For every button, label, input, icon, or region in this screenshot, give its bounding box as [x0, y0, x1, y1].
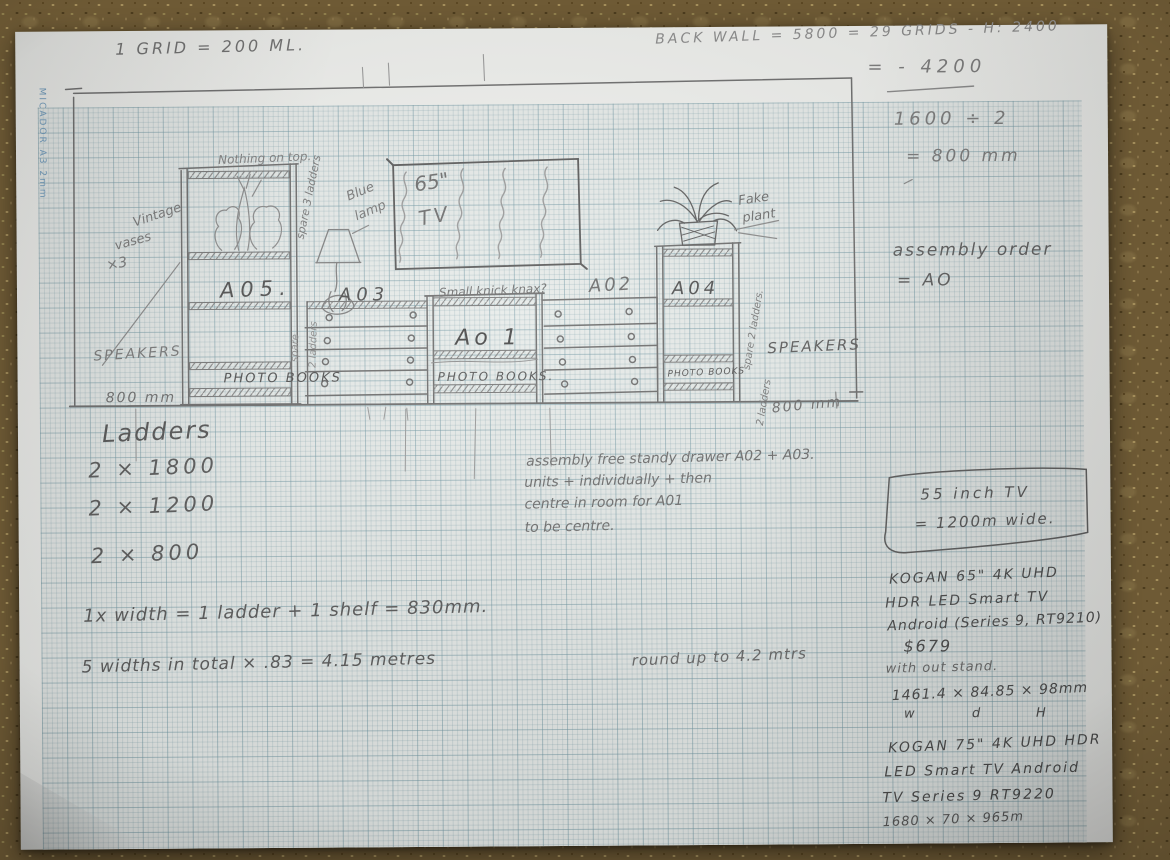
photo-books-a01-label: PHOTO BOOKS. — [438, 370, 555, 384]
vases-sketch — [215, 174, 282, 250]
dim-left-label: 800 mm — [106, 391, 177, 407]
unit-a05-label: A05. — [220, 277, 293, 303]
result-calc: = 800 mm — [906, 147, 1021, 166]
photo-of-sketch: MICADOR A3 2mm — [0, 0, 1170, 860]
graph-paper-sheet: MICADOR A3 2mm — [15, 24, 1113, 850]
tv-box-note-line1: 55 inch TV — [920, 484, 1030, 503]
photo-books-a05-label: PHOTO BOOKS — [224, 372, 342, 387]
two-ladders-left-label: 2 ladders — [308, 321, 320, 368]
axis-w-label: w — [904, 708, 915, 722]
drawer-unit-a03-drawing — [305, 301, 428, 404]
assembly-note-line4: to be centre. — [524, 519, 614, 537]
spare-left-label: spare — [289, 334, 301, 362]
without-stand-note: with out stand. — [885, 660, 998, 677]
axis-h-label: H — [1036, 707, 1046, 721]
axis-d-label: d — [972, 707, 980, 721]
drawer-unit-a02-drawing — [542, 297, 658, 402]
divide-calc: 1600 ÷ 2 — [894, 109, 1010, 130]
ladder-item-3: 2 × 800 — [90, 541, 203, 569]
assembly-order-label: assembly order — [893, 241, 1053, 261]
unit-a01-label: Ao 1 — [455, 326, 521, 351]
plant-sketch — [657, 183, 736, 246]
ladders-heading: Ladders — [101, 417, 212, 448]
speakers-right-label: SPEAKERS — [767, 336, 861, 356]
tv-label: TV — [417, 202, 452, 229]
minus-calc: = - 4200 — [867, 57, 986, 78]
assembly-order-value: = AO — [897, 271, 954, 290]
unit-a02-label: A02 — [588, 274, 633, 296]
tv-size-label: 65" — [413, 169, 450, 196]
tv-price: $679 — [903, 637, 952, 655]
unit-a04-label: A04 — [672, 279, 719, 299]
unit-a03-label: A03 — [339, 285, 389, 305]
tv-note-box-drawing — [884, 468, 1088, 553]
